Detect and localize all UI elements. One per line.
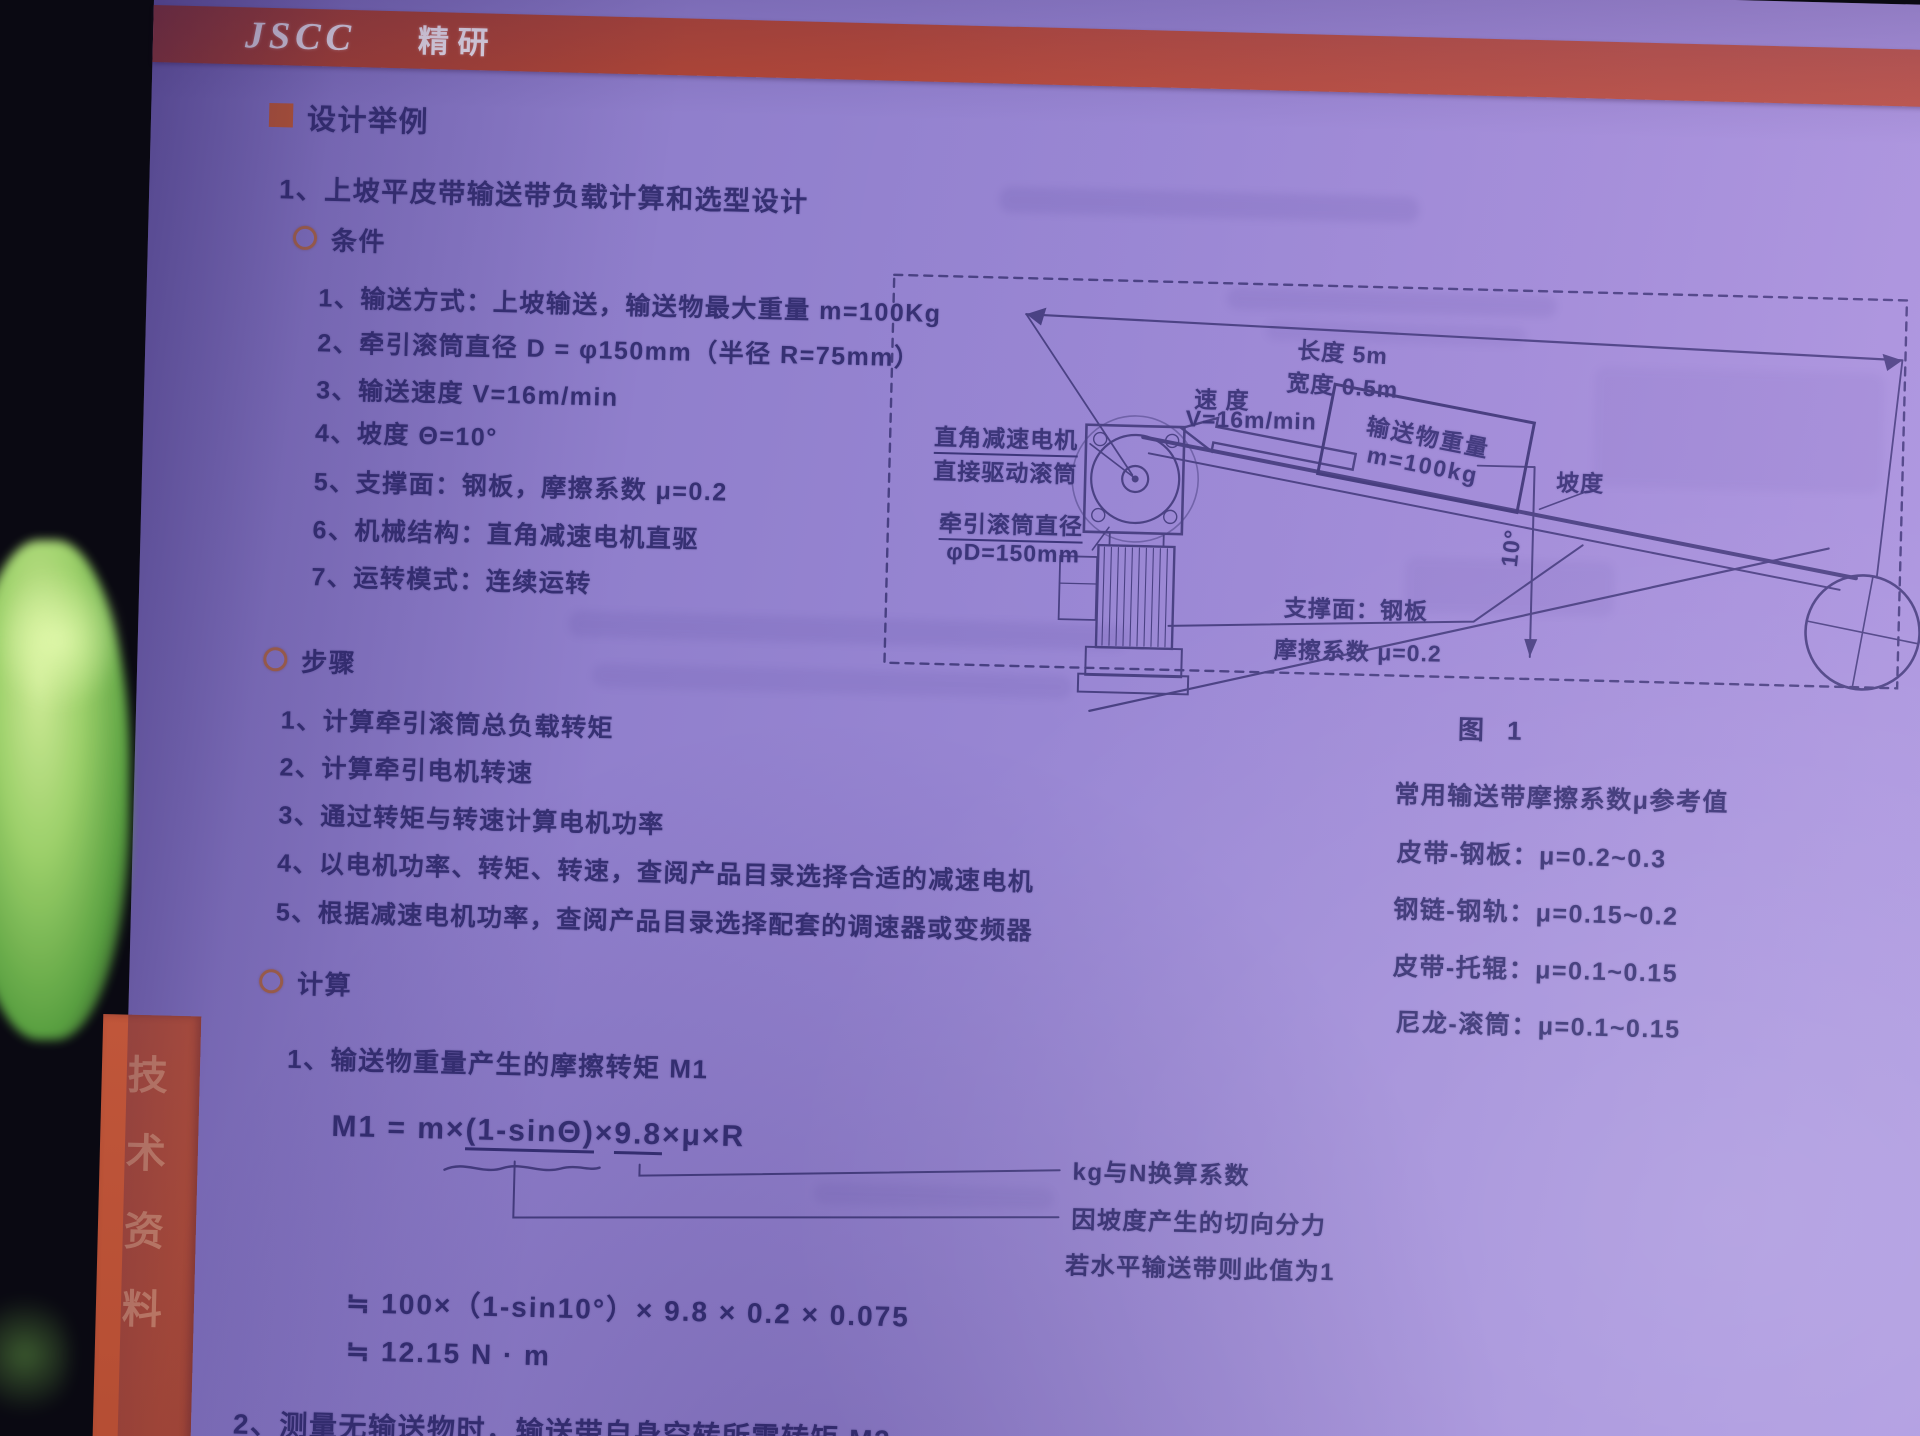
formula-pre: M1 = m× <box>331 1110 466 1146</box>
formula-post: ×μ×R <box>662 1118 746 1153</box>
figure-label-motor: 直角减速电机 直接驱动滚筒 <box>933 418 1079 490</box>
figure-label-support: 支撑面：钢板 <box>1284 589 1429 627</box>
conditions-heading: 条件 <box>331 221 387 259</box>
figure-label-slope: 坡度 <box>1556 464 1605 499</box>
steps-heading: 步骤 <box>301 642 357 680</box>
green-object-highlight <box>0 560 115 720</box>
formula-annotation-kg: kg与N换算系数 <box>1072 1152 1250 1191</box>
calc-result-line: ≒ 12.15 N · m <box>345 1334 551 1372</box>
condition-item: 7、运转模式：连续运转 <box>311 557 592 600</box>
section-square-bullet <box>269 103 294 128</box>
green-object <box>0 540 130 1040</box>
photographed-catalog-page: JSCC 精 研 技 术 资 料 <box>0 0 1920 1436</box>
calc-heading: 计算 <box>297 964 353 1002</box>
figure-label-roller-line2: φD=150mm <box>946 538 1080 567</box>
figure-label-roller: 牵引滚筒直径 φD=150mm <box>938 504 1083 569</box>
formula-factor-gravity: 9.8 <box>614 1117 663 1155</box>
page-title: 设计举例 <box>307 96 430 141</box>
formula-annotation-horizontal: 若水平输送带则此值为1 <box>1065 1245 1336 1287</box>
figure-label-speed-value: V=16m/min <box>1185 405 1317 435</box>
green-object-dim <box>0 1285 70 1425</box>
friction-reference-item: 钢链-钢轨：μ=0.15~0.2 <box>1393 890 1679 933</box>
figure-caption: 图 1 <box>1458 709 1531 748</box>
figure-label-angle: 10° <box>1496 528 1527 569</box>
figure-label-friction: 摩擦系数 μ=0.2 <box>1274 631 1443 669</box>
formula-factor-slope: (1-sinΘ) <box>465 1113 595 1153</box>
figure-label-motor-line1: 直角减速电机 <box>934 424 1079 458</box>
friction-reference-item: 皮带-托辊：μ=0.1~0.15 <box>1393 947 1679 990</box>
page-sheet: JSCC 精 研 技 术 资 料 <box>116 0 1920 1436</box>
condition-item: 3、输送速度 V=16m/min <box>316 370 619 414</box>
formula-annotation-slope: 因坡度产生的切向分力 <box>1071 1200 1327 1241</box>
friction-reference-item: 尼龙-滚筒：μ=0.1~0.15 <box>1395 1003 1681 1046</box>
formula-mid: × <box>594 1117 614 1150</box>
friction-reference-item: 皮带-钢板：μ=0.2~0.3 <box>1396 833 1667 876</box>
figure-label-motor-line2: 直接驱动滚筒 <box>933 458 1078 488</box>
condition-item: 4、坡度 Θ=10° <box>315 413 499 454</box>
step-item: 2、计算牵引电机转速 <box>279 747 534 789</box>
